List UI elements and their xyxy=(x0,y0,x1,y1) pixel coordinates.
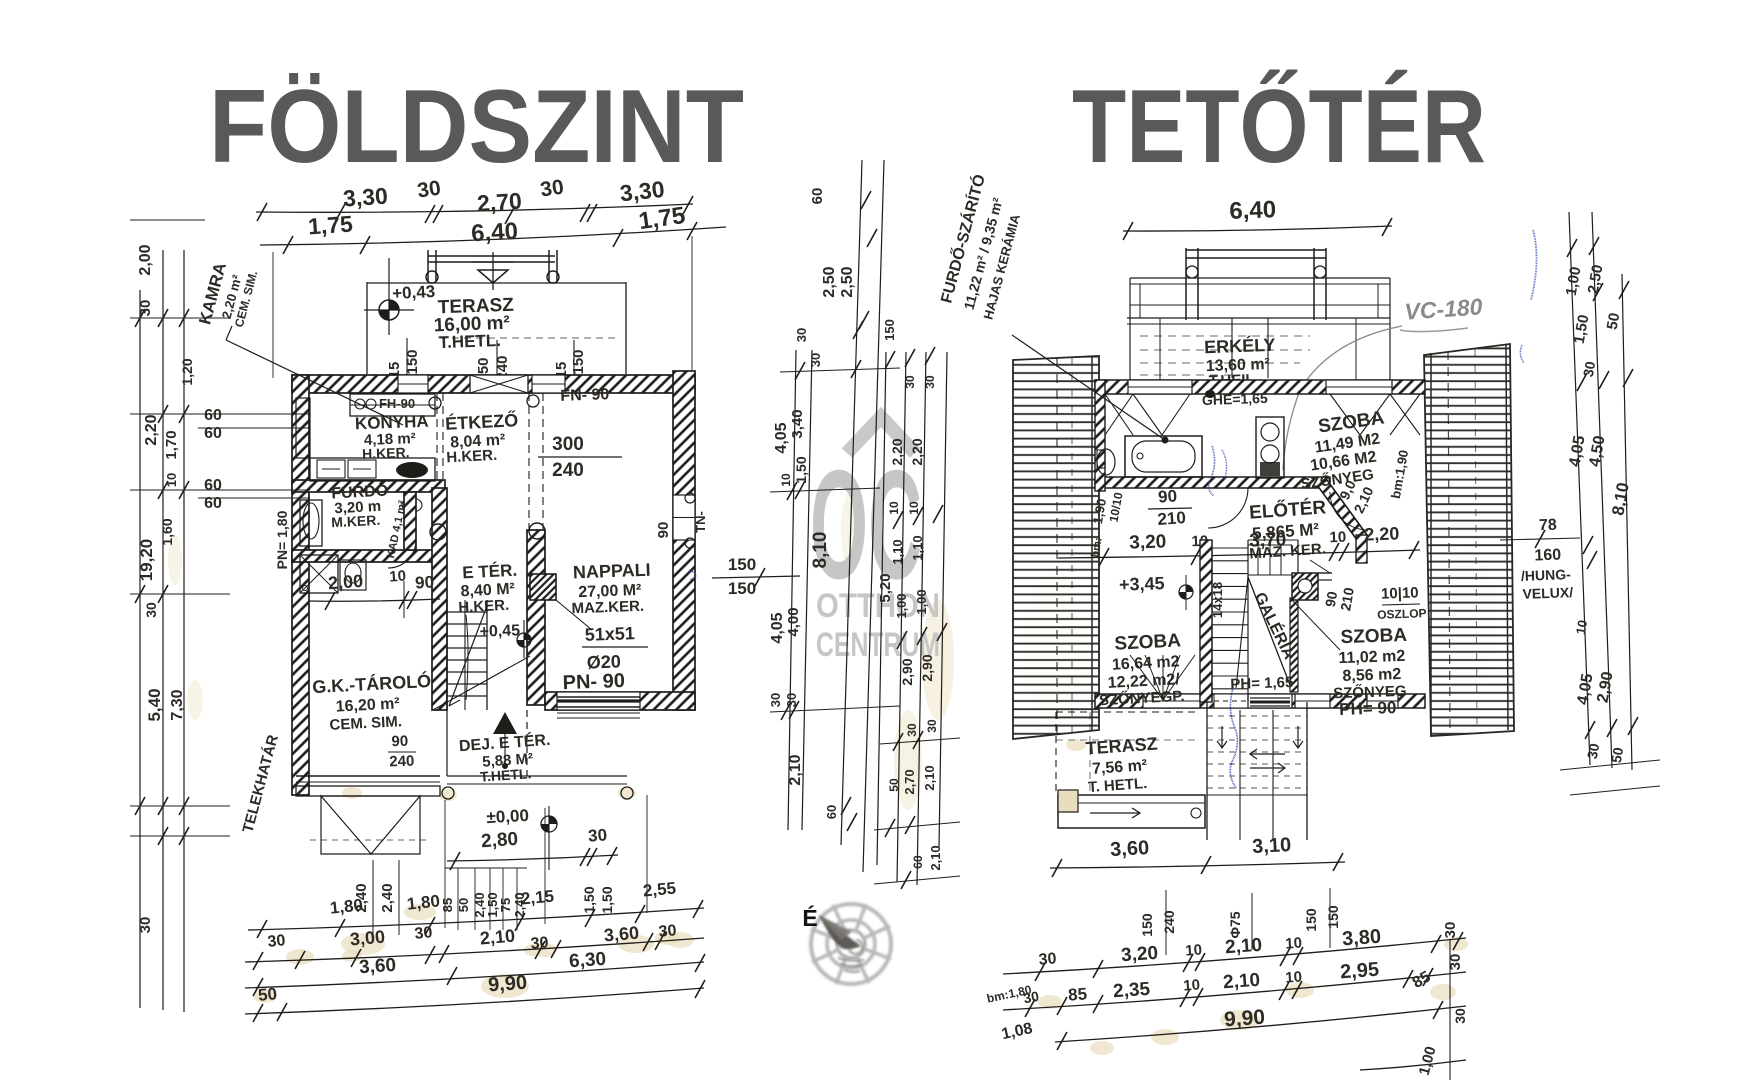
svg-text:1,00: 1,00 xyxy=(914,589,929,614)
svg-text:4,05: 4,05 xyxy=(769,612,786,643)
svg-text:10: 10 xyxy=(1329,529,1346,547)
svg-text:8,10: 8,10 xyxy=(810,532,831,569)
svg-text:2,10: 2,10 xyxy=(479,926,516,949)
svg-text:3,30: 3,30 xyxy=(619,176,666,207)
svg-text:TN-: TN- xyxy=(693,511,708,533)
svg-text:85: 85 xyxy=(440,898,455,912)
svg-text:50: 50 xyxy=(887,778,901,792)
svg-text:60: 60 xyxy=(911,855,925,869)
svg-text:240: 240 xyxy=(389,753,415,771)
svg-text:10: 10 xyxy=(887,501,901,515)
svg-text:1,70: 1,70 xyxy=(163,430,180,459)
svg-text:2,95: 2,95 xyxy=(1339,959,1379,984)
svg-text:PN= 1,80: PN= 1,80 xyxy=(274,510,290,569)
svg-text:150: 150 xyxy=(1303,908,1319,932)
svg-text:160: 160 xyxy=(1534,547,1561,565)
svg-text:+3,45: +3,45 xyxy=(1119,573,1165,595)
svg-text:150: 150 xyxy=(404,349,421,374)
svg-text:50: 50 xyxy=(257,984,278,1005)
svg-text:30: 30 xyxy=(808,353,823,367)
svg-text:30: 30 xyxy=(1022,988,1040,1006)
svg-text:5,40: 5,40 xyxy=(145,688,164,721)
svg-text:NAPPALI: NAPPALI xyxy=(573,560,651,583)
svg-text:E TÉR.: E TÉR. xyxy=(462,561,518,583)
svg-text:10: 10 xyxy=(1183,976,1201,994)
svg-text:2,10: 2,10 xyxy=(1224,935,1262,959)
svg-text:Φ75: Φ75 xyxy=(1227,911,1243,938)
svg-text:10|10: 10|10 xyxy=(1381,584,1419,602)
svg-text:PH= 1,65: PH= 1,65 xyxy=(1230,674,1294,693)
svg-text:2,20: 2,20 xyxy=(909,438,925,465)
svg-text:2,55: 2,55 xyxy=(642,879,677,901)
svg-text:90: 90 xyxy=(655,522,672,539)
svg-text:50: 50 xyxy=(1608,746,1626,764)
svg-text:SZOBA: SZOBA xyxy=(1340,625,1407,648)
svg-text:240: 240 xyxy=(1161,910,1177,934)
svg-text:30: 30 xyxy=(903,375,917,389)
svg-text:/HUNG-: /HUNG- xyxy=(1521,566,1572,584)
svg-text:2,00: 2,00 xyxy=(327,571,363,593)
svg-text:1,60: 1,60 xyxy=(159,518,175,545)
svg-text:30: 30 xyxy=(416,177,442,203)
svg-text:2,20: 2,20 xyxy=(889,438,905,465)
svg-text:6,30: 6,30 xyxy=(568,949,606,973)
svg-text:9,90: 9,90 xyxy=(487,972,527,997)
svg-text:10: 10 xyxy=(1573,619,1590,636)
svg-text:2,20: 2,20 xyxy=(143,414,160,445)
svg-text:210: 210 xyxy=(1157,508,1187,529)
svg-text:FN- 90: FN- 90 xyxy=(560,386,610,405)
svg-text:10: 10 xyxy=(1285,968,1303,986)
svg-text:16,20 m²: 16,20 m² xyxy=(335,695,400,715)
svg-text:30: 30 xyxy=(1580,360,1598,378)
svg-text:14x18: 14x18 xyxy=(1210,582,1225,618)
svg-text:3,60: 3,60 xyxy=(1110,837,1150,861)
svg-text:1,80: 1,80 xyxy=(329,895,364,917)
svg-text:30: 30 xyxy=(905,723,919,737)
svg-text:1,00: 1,00 xyxy=(894,593,909,618)
svg-text:3,60: 3,60 xyxy=(603,923,640,946)
svg-text:3,40: 3,40 xyxy=(789,409,806,438)
svg-text:H.KER.: H.KER. xyxy=(362,444,410,462)
svg-text:2,10: 2,10 xyxy=(787,754,804,785)
svg-text:30: 30 xyxy=(137,917,154,934)
svg-text:30: 30 xyxy=(143,602,159,618)
svg-text:VELUX/: VELUX/ xyxy=(1522,584,1573,602)
svg-text:PN- 90: PN- 90 xyxy=(562,670,625,694)
svg-text:150: 150 xyxy=(1139,913,1155,937)
svg-text:7,30: 7,30 xyxy=(169,689,186,720)
svg-text:2,50: 2,50 xyxy=(821,266,838,297)
svg-text:2,20: 2,20 xyxy=(1364,523,1400,544)
svg-text:+0,43: +0,43 xyxy=(392,282,436,303)
svg-text:2,10: 2,10 xyxy=(922,765,937,790)
svg-text:2,35: 2,35 xyxy=(1112,979,1151,1003)
svg-text:2,10: 2,10 xyxy=(928,845,943,870)
svg-text:±0,00: ±0,00 xyxy=(486,806,529,827)
svg-text:SZOBA: SZOBA xyxy=(1114,630,1182,654)
svg-text:30: 30 xyxy=(414,924,434,943)
svg-text:1,20: 1,20 xyxy=(179,358,195,385)
svg-text:1,75: 1,75 xyxy=(307,210,354,239)
svg-text:30: 30 xyxy=(794,328,809,342)
svg-text:60: 60 xyxy=(204,477,222,494)
svg-text:PH= 90: PH= 90 xyxy=(1339,698,1397,719)
svg-text:T.HETL.: T.HETL. xyxy=(438,331,501,352)
svg-text:75: 75 xyxy=(498,898,513,912)
svg-text:TETŐTÉR: TETŐTÉR xyxy=(1072,69,1486,185)
svg-text:10: 10 xyxy=(907,501,921,515)
svg-text:60: 60 xyxy=(809,188,826,205)
svg-text:11,02 m2: 11,02 m2 xyxy=(1338,648,1405,667)
svg-text:90: 90 xyxy=(1158,486,1178,506)
svg-text:5,20: 5,20 xyxy=(877,573,894,602)
svg-text:90: 90 xyxy=(415,572,435,592)
svg-text:+0,45: +0,45 xyxy=(479,622,520,640)
svg-text:30: 30 xyxy=(539,176,565,202)
svg-text:6,40: 6,40 xyxy=(471,218,519,247)
svg-text:9,90: 9,90 xyxy=(1223,1006,1265,1032)
svg-text:30: 30 xyxy=(588,825,608,845)
svg-text:8,56 m2: 8,56 m2 xyxy=(1342,666,1401,685)
svg-text:MAZ.KER.: MAZ.KER. xyxy=(571,598,644,618)
svg-text:FÖLDSZINT: FÖLDSZINT xyxy=(209,69,744,185)
svg-text:2,15: 2,15 xyxy=(520,887,555,909)
svg-text:30: 30 xyxy=(768,693,783,707)
svg-text:M.KER.: M.KER. xyxy=(331,512,381,531)
svg-text:2,70: 2,70 xyxy=(902,769,917,794)
svg-text:60: 60 xyxy=(824,805,839,819)
svg-text:19,20: 19,20 xyxy=(137,539,156,582)
svg-text:ÉTKEZŐ: ÉTKEZŐ xyxy=(445,409,519,434)
svg-text:6,40: 6,40 xyxy=(1229,196,1277,225)
svg-text:85: 85 xyxy=(1068,984,1088,1004)
svg-text:1,50: 1,50 xyxy=(793,456,809,483)
svg-text:2,00: 2,00 xyxy=(137,244,154,275)
svg-text:90: 90 xyxy=(391,733,408,751)
svg-text:300: 300 xyxy=(552,434,584,455)
svg-text:3,60: 3,60 xyxy=(358,955,396,979)
svg-text:1,50: 1,50 xyxy=(599,886,615,913)
svg-text:FH-90: FH-90 xyxy=(379,396,415,411)
svg-text:10: 10 xyxy=(164,473,179,487)
svg-text:4,05: 4,05 xyxy=(773,422,790,453)
svg-text:150: 150 xyxy=(570,349,587,374)
svg-text:H.KER.: H.KER. xyxy=(446,447,498,467)
svg-text:VC-180: VC-180 xyxy=(1404,293,1484,324)
svg-text:10: 10 xyxy=(1285,934,1303,952)
svg-text:3,80: 3,80 xyxy=(1341,926,1381,951)
svg-text:1,10: 1,10 xyxy=(910,535,925,560)
svg-text:150: 150 xyxy=(1325,905,1341,929)
svg-text:2,80: 2,80 xyxy=(480,829,518,853)
svg-text:30: 30 xyxy=(1442,922,1459,939)
svg-text:2,50: 2,50 xyxy=(839,266,856,297)
svg-text:78: 78 xyxy=(1539,517,1557,535)
svg-text:2,70: 2,70 xyxy=(476,187,522,216)
svg-text:10: 10 xyxy=(1185,941,1203,959)
svg-text:3,10: 3,10 xyxy=(1252,834,1292,858)
svg-text:30: 30 xyxy=(1584,742,1602,760)
svg-text:1,10: 1,10 xyxy=(890,539,905,564)
svg-text:3,00: 3,00 xyxy=(349,927,386,950)
svg-text:10: 10 xyxy=(779,473,793,487)
svg-text:2,10: 2,10 xyxy=(1222,970,1260,994)
svg-text:30: 30 xyxy=(1452,1008,1468,1024)
svg-text:30: 30 xyxy=(1038,950,1057,968)
svg-text:2,90: 2,90 xyxy=(919,654,935,681)
svg-text:51x51: 51x51 xyxy=(584,623,635,645)
svg-text:OSZLOP: OSZLOP xyxy=(1377,606,1427,622)
svg-text:50: 50 xyxy=(1604,312,1624,331)
svg-text:150: 150 xyxy=(728,579,756,598)
svg-text:30: 30 xyxy=(923,375,937,389)
svg-text:3,20: 3,20 xyxy=(1129,531,1167,553)
svg-text:2,40: 2,40 xyxy=(379,883,396,912)
svg-text:30: 30 xyxy=(925,719,939,733)
svg-text:150: 150 xyxy=(882,319,897,341)
svg-text:30: 30 xyxy=(137,300,154,317)
svg-text:60: 60 xyxy=(204,407,222,424)
svg-text:240: 240 xyxy=(552,460,584,481)
svg-text:2,90: 2,90 xyxy=(899,658,915,685)
svg-text:4,00: 4,00 xyxy=(785,607,802,636)
svg-text:30: 30 xyxy=(267,932,287,951)
svg-text:1,80: 1,80 xyxy=(406,891,441,913)
svg-text:3,20: 3,20 xyxy=(1120,943,1158,967)
svg-text:ERKÉLY: ERKÉLY xyxy=(1204,334,1276,357)
svg-text:É: É xyxy=(802,904,817,931)
svg-text:3,30: 3,30 xyxy=(342,182,388,211)
svg-text:150: 150 xyxy=(728,555,756,574)
svg-text:OC: OC xyxy=(810,438,922,611)
svg-text:Ø20: Ø20 xyxy=(586,651,621,672)
